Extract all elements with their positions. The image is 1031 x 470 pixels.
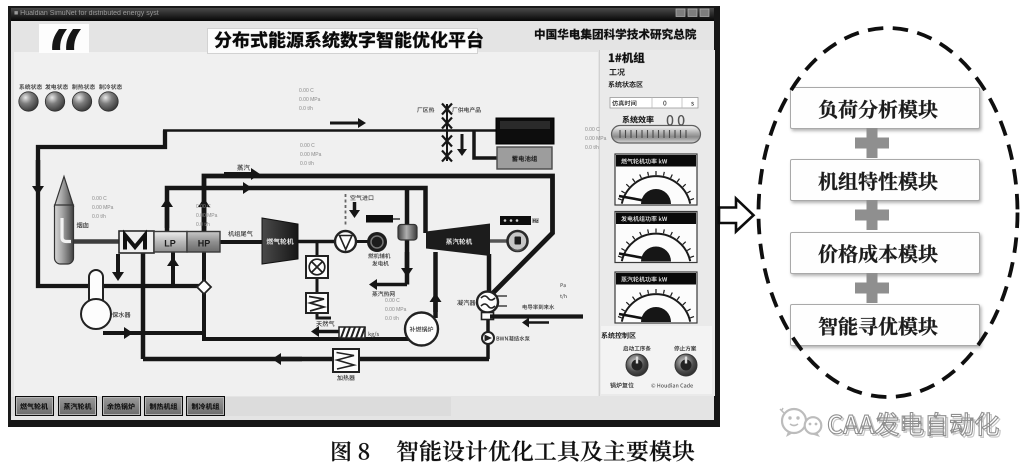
svg-text:0.0 t/h: 0.0 t/h xyxy=(585,145,599,151)
svg-text:0.00 C: 0.00 C xyxy=(585,127,600,133)
svg-text:0.00 C: 0.00 C xyxy=(196,204,211,210)
svg-text:0.00 C: 0.00 C xyxy=(385,298,400,304)
svg-text:0.00 MPa: 0.00 MPa xyxy=(585,136,607,142)
svg-text:0.0 t/h: 0.0 t/h xyxy=(385,316,399,322)
svg-text:HP: HP xyxy=(198,239,211,249)
svg-text:0.00 C: 0.00 C xyxy=(300,143,315,149)
svg-text:0.00 MPa: 0.00 MPa xyxy=(385,307,407,313)
svg-text:0.0 t/h: 0.0 t/h xyxy=(196,222,210,228)
svg-text:0.00 MPa: 0.00 MPa xyxy=(300,152,322,158)
svg-text:0.00 MPa: 0.00 MPa xyxy=(92,205,114,211)
svg-text:0.0 t/h: 0.0 t/h xyxy=(300,161,314,167)
svg-text:0.00 C: 0.00 C xyxy=(92,196,107,202)
svg-text:0.0 t/h: 0.0 t/h xyxy=(299,106,313,112)
svg-text:0.0 t/h: 0.0 t/h xyxy=(92,214,106,220)
svg-text:0.00 MPa: 0.00 MPa xyxy=(299,97,321,103)
svg-text:0.00 C: 0.00 C xyxy=(299,88,314,94)
svg-text:0.00 MPa: 0.00 MPa xyxy=(196,213,218,219)
svg-text:LP: LP xyxy=(164,239,176,249)
